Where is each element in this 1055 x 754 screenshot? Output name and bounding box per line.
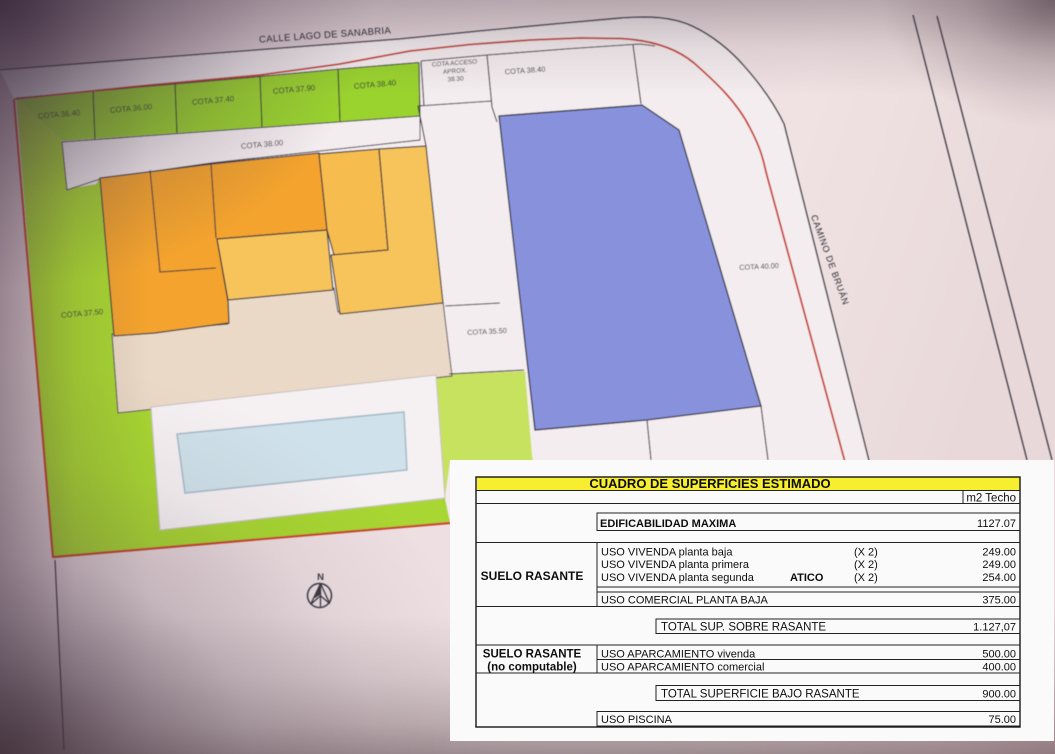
svg-text:USO APARCAMIENTO comercial: USO APARCAMIENTO comercial: [601, 662, 764, 674]
svg-text:USO VIVENDA planta segunda: USO VIVENDA planta segunda: [601, 572, 755, 584]
svg-text:TOTAL SUPERFICIE BAJO RASANTE: TOTAL SUPERFICIE BAJO RASANTE: [661, 689, 860, 701]
svg-text:USO PISCINA: USO PISCINA: [601, 714, 673, 726]
svg-text:249.00: 249.00: [982, 559, 1016, 571]
svg-text:500.00: 500.00: [982, 649, 1016, 661]
svg-text:(X 2): (X 2): [854, 559, 878, 571]
svg-text:1127.07: 1127.07: [977, 518, 1016, 530]
svg-text:254.00: 254.00: [982, 572, 1016, 584]
svg-text:(X 2): (X 2): [854, 572, 878, 584]
svg-text:249.00: 249.00: [982, 547, 1016, 559]
svg-text:SUELO RASANTE: SUELO RASANTE: [483, 649, 582, 661]
svg-text:EDIFICABILIDAD MAXIMA: EDIFICABILIDAD MAXIMA: [600, 518, 736, 530]
svg-text:USO VIVENDA planta baja: USO VIVENDA planta baja: [601, 547, 733, 559]
svg-text:(X 2): (X 2): [854, 547, 878, 559]
svg-text:m2 Techo: m2 Techo: [966, 493, 1016, 505]
svg-text:75.00: 75.00: [988, 714, 1016, 726]
svg-text:(no computable): (no computable): [487, 662, 577, 674]
svg-text:USO COMERCIAL PLANTA BAJA: USO COMERCIAL PLANTA BAJA: [601, 595, 769, 607]
svg-text:SUELO RASANTE: SUELO RASANTE: [481, 569, 584, 583]
svg-text:CUADRO DE SUPERFICIES ESTIMADO: CUADRO DE SUPERFICIES ESTIMADO: [589, 476, 830, 491]
svg-text:375.00: 375.00: [982, 595, 1016, 607]
svg-text:USO APARCAMIENTO vivenda: USO APARCAMIENTO vivenda: [601, 649, 756, 661]
svg-text:400.00: 400.00: [982, 662, 1016, 674]
svg-text:ATICO: ATICO: [790, 572, 824, 584]
svg-text:1.127,07: 1.127,07: [973, 622, 1016, 634]
svg-text:900.00: 900.00: [982, 689, 1016, 701]
svg-text:USO VIVENDA planta primera: USO VIVENDA planta primera: [601, 559, 750, 571]
svg-text:TOTAL SUP. SOBRE RASANTE: TOTAL SUP. SOBRE RASANTE: [661, 622, 826, 634]
